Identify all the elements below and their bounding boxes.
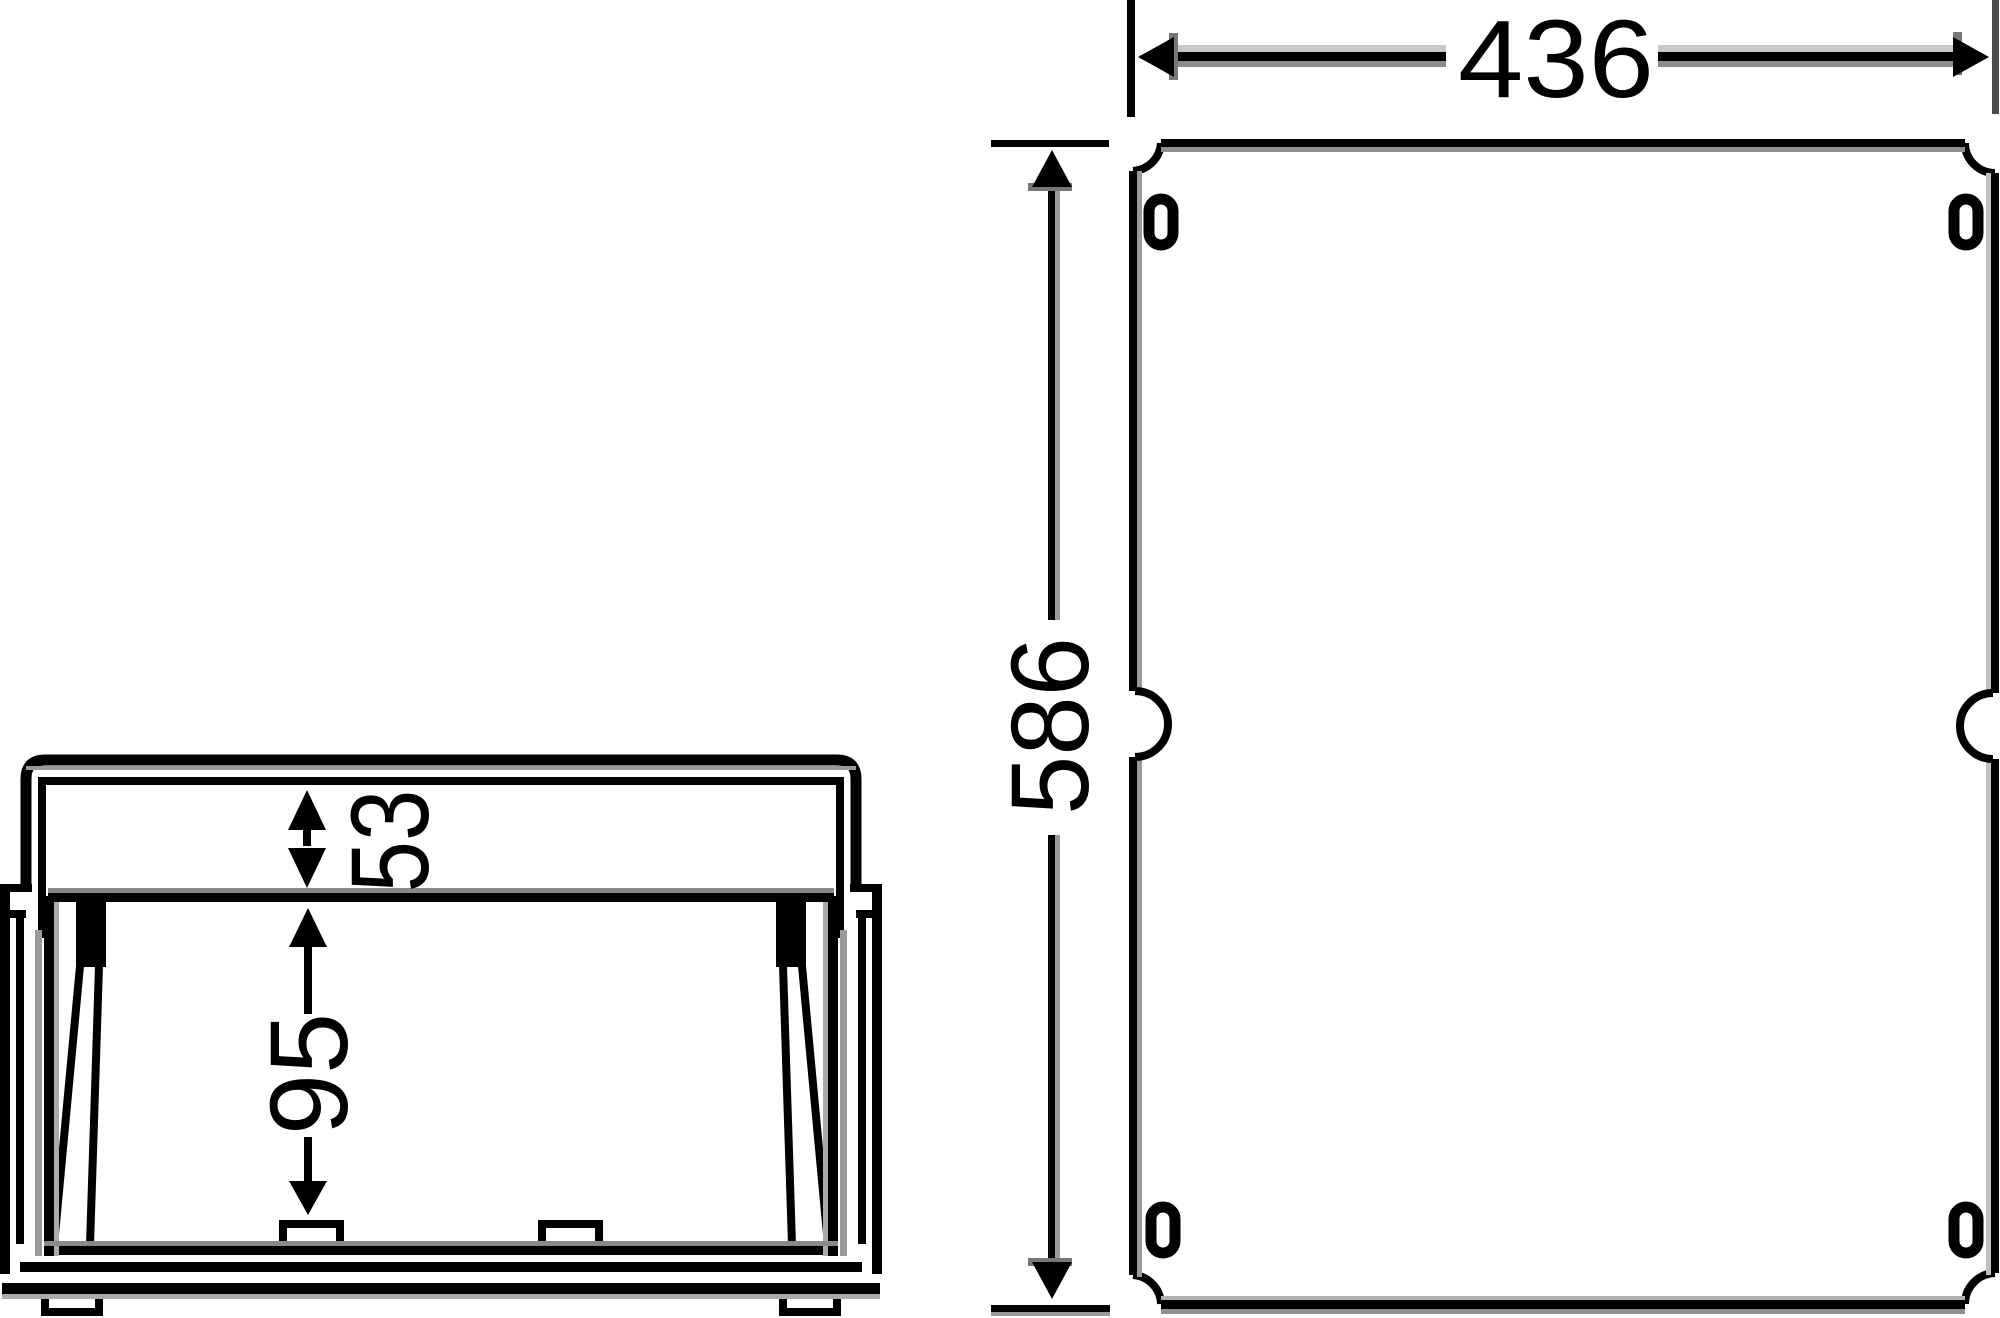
svg-text:53: 53 — [329, 790, 452, 893]
svg-text:436: 436 — [1458, 0, 1654, 121]
svg-text:586: 586 — [989, 637, 1112, 815]
svg-text:95: 95 — [248, 1013, 371, 1135]
